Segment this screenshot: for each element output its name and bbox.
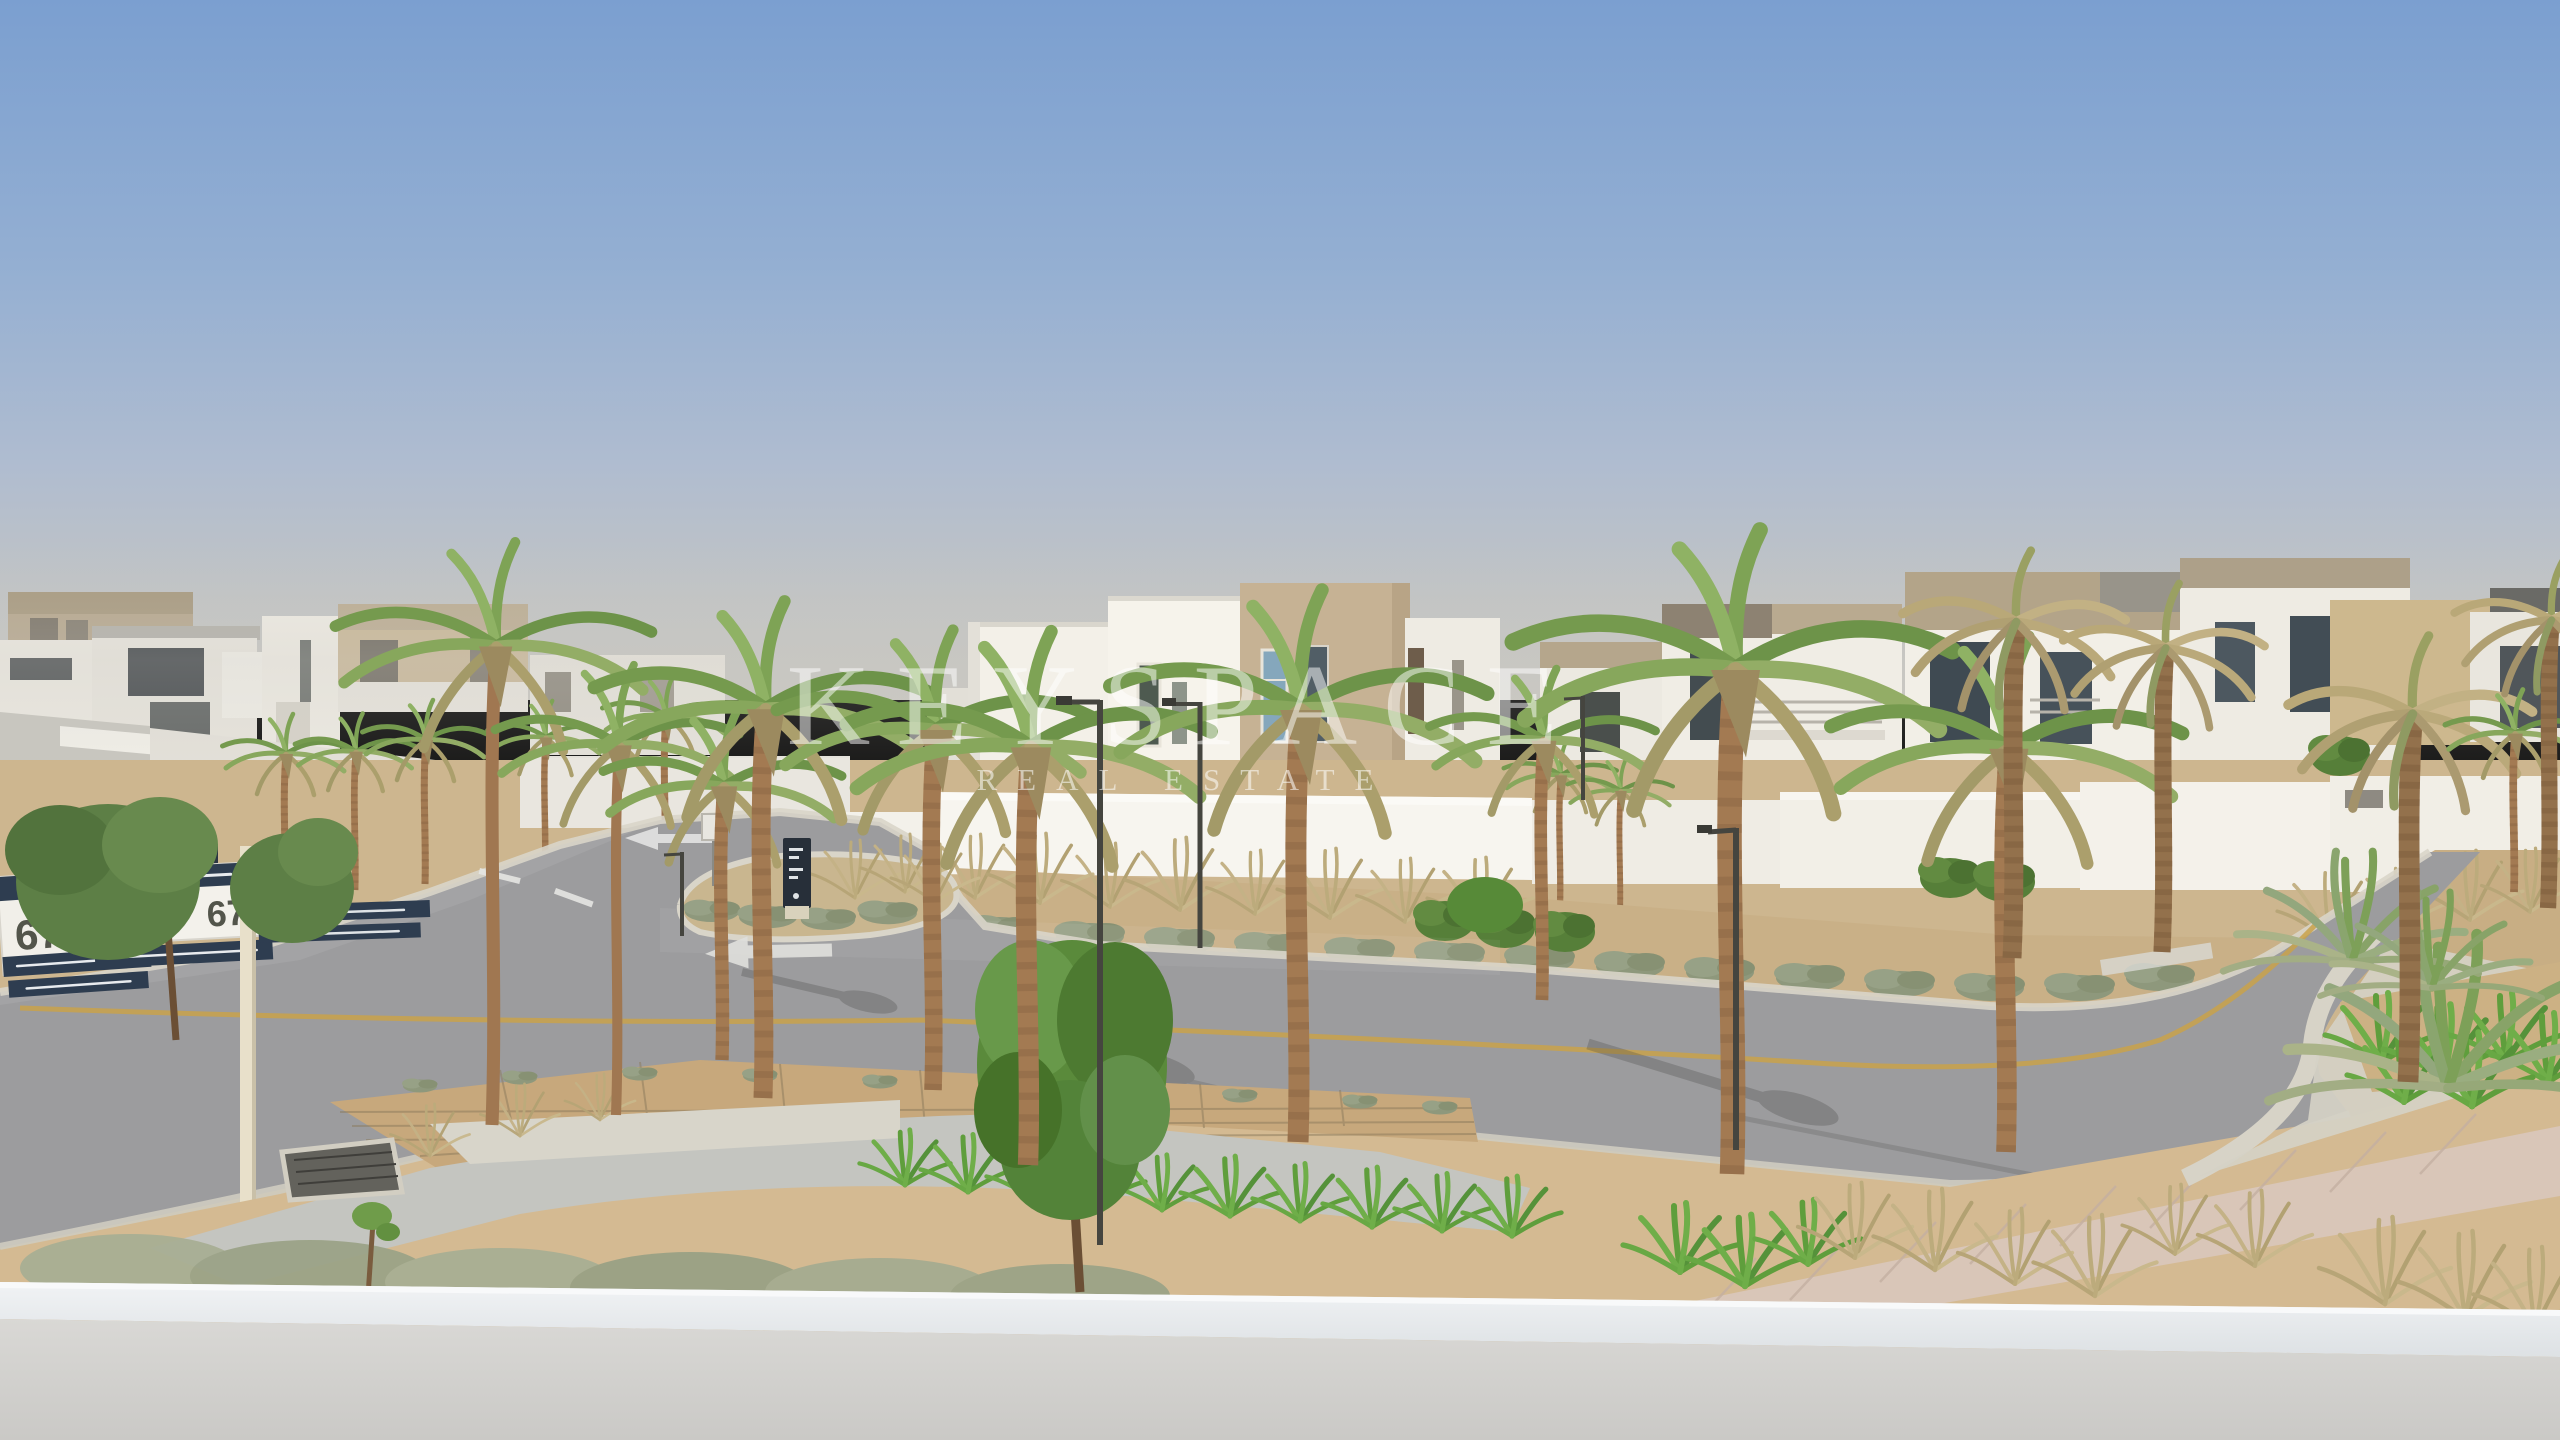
green-tree-median bbox=[1447, 877, 1523, 933]
scene-canvas: 676 Street 676 Street bbox=[0, 0, 2560, 1440]
utility-grate bbox=[282, 1140, 402, 1200]
photo-villa-community: 676 Street 676 Street bbox=[0, 0, 2560, 1440]
watermark-brand: KEYSPACE bbox=[787, 642, 1584, 770]
wayfinding-monolith-junction bbox=[783, 838, 811, 919]
watermark-tagline: REAL ESTATE bbox=[977, 762, 1394, 797]
